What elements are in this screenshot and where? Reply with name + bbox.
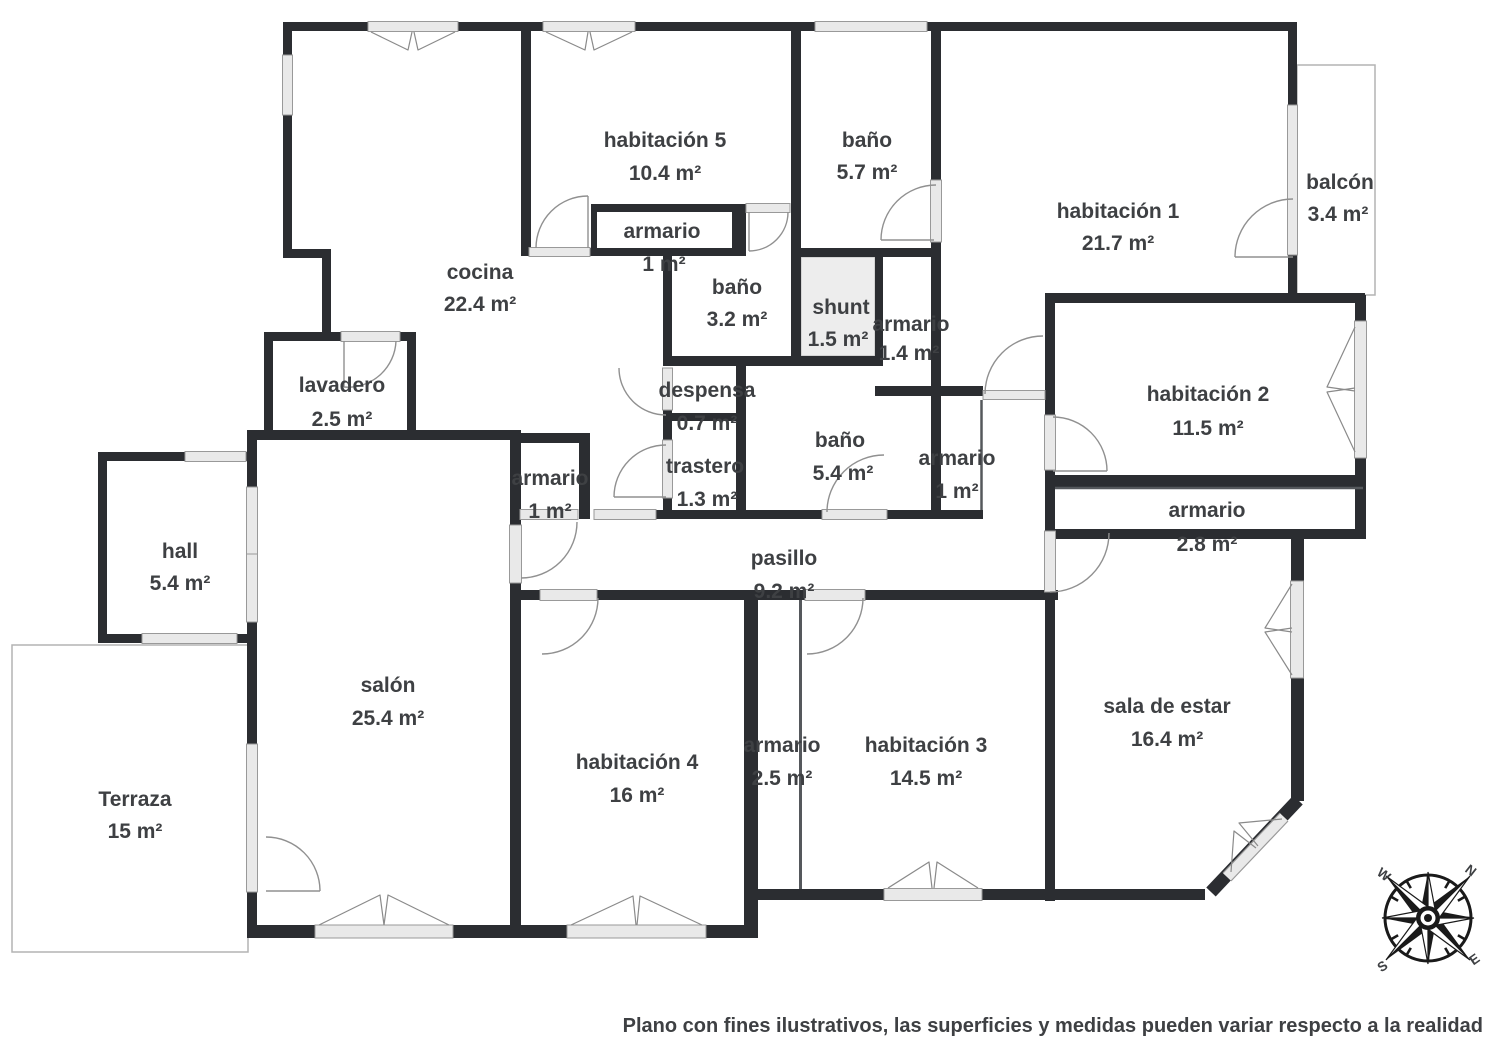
svg-text:1.3 m²: 1.3 m² [677,488,738,511]
svg-text:lavadero: lavadero [299,374,385,397]
svg-text:armario: armario [872,313,949,336]
svg-text:22.4 m²: 22.4 m² [444,293,516,316]
svg-text:baño: baño [842,129,892,152]
svg-text:1 m²: 1 m² [642,253,685,276]
svg-text:armario: armario [743,734,820,757]
svg-text:habitación 4: habitación 4 [576,751,699,774]
svg-text:shunt: shunt [812,296,869,319]
svg-text:1.4 m²: 1.4 m² [879,342,940,365]
svg-text:balcón: balcón [1306,171,1374,194]
svg-text:hall: hall [162,540,198,563]
svg-text:1.5 m²: 1.5 m² [808,328,869,351]
svg-text:16.4 m²: 16.4 m² [1131,728,1203,751]
svg-text:despensa: despensa [659,379,756,402]
svg-text:trastero: trastero [666,455,744,478]
svg-text:pasillo: pasillo [751,547,818,570]
svg-text:armario: armario [511,467,588,490]
svg-text:0.7 m²: 0.7 m² [677,412,738,435]
svg-text:armario: armario [623,220,700,243]
svg-text:15 m²: 15 m² [108,820,163,843]
svg-text:3.4 m²: 3.4 m² [1308,203,1369,226]
svg-text:10.4 m²: 10.4 m² [629,162,701,185]
svg-text:3.2 m²: 3.2 m² [707,308,768,331]
svg-text:habitación 2: habitación 2 [1147,383,1270,406]
svg-text:Plano con fines ilustrativos,: Plano con fines ilustrativos, las superf… [623,1015,1483,1037]
svg-text:1 m²: 1 m² [528,500,571,523]
svg-text:armario: armario [918,447,995,470]
svg-text:2.8 m²: 2.8 m² [1177,533,1238,556]
svg-text:habitación 5: habitación 5 [604,129,727,152]
svg-text:baño: baño [712,276,762,299]
svg-text:16 m²: 16 m² [610,784,665,807]
svg-text:2.5 m²: 2.5 m² [752,767,813,790]
svg-text:5.7 m²: 5.7 m² [837,161,898,184]
svg-text:habitación 1: habitación 1 [1057,200,1180,223]
svg-text:Terraza: Terraza [98,788,171,811]
svg-text:25.4 m²: 25.4 m² [352,707,424,730]
svg-text:sala de estar: sala de estar [1103,695,1230,718]
svg-text:14.5 m²: 14.5 m² [890,767,962,790]
svg-text:1 m²: 1 m² [935,480,978,503]
svg-text:2.5 m²: 2.5 m² [312,408,373,431]
svg-text:baño: baño [815,429,865,452]
svg-text:habitación 3: habitación 3 [865,734,988,757]
svg-text:21.7 m²: 21.7 m² [1082,232,1154,255]
svg-text:salón: salón [361,674,416,697]
svg-text:armario: armario [1168,499,1245,522]
svg-text:5.4 m²: 5.4 m² [150,572,211,595]
svg-text:cocina: cocina [447,261,514,284]
svg-text:5.4 m²: 5.4 m² [813,462,874,485]
svg-text:9.2 m²: 9.2 m² [754,580,815,603]
svg-text:11.5 m²: 11.5 m² [1172,417,1243,440]
